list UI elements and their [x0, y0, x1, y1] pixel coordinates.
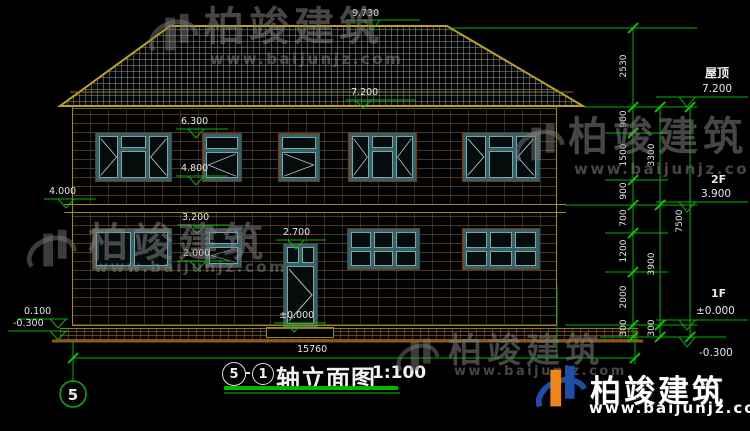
level-value-2f: 3.900	[701, 189, 731, 199]
watermark-brand: 柏竣建筑	[204, 6, 384, 48]
axis-bubble-label: 5	[60, 386, 86, 404]
level-value-1f: ±0.000	[696, 306, 735, 316]
level-value-roof: 7.200	[702, 84, 732, 94]
title-underline-thick	[224, 386, 398, 390]
brand-url: www.baijunjz.com	[589, 399, 750, 417]
dim-label-w2-top: 6.300	[181, 117, 208, 127]
watermark-url: www.baijunjz.com	[94, 258, 287, 276]
title-axis-start: 5	[222, 362, 246, 386]
dim-label-door-top: 2.700	[283, 228, 310, 238]
watermark-logo-icon	[512, 116, 570, 174]
dim-label-w2-sill: 4.800	[181, 164, 208, 174]
cad-elevation-canvas: 9.730 7.200 6.300 4.800 3.200 2.000 2.70…	[0, 0, 750, 431]
dim-col2-2: 300	[647, 306, 657, 350]
dim-label-belt: 4.000	[49, 187, 76, 197]
watermark-logo-icon	[394, 332, 444, 382]
brand-logo-icon	[532, 360, 590, 418]
dim-label-total-width: 15760	[297, 345, 327, 355]
dim-col2-1: 3900	[647, 242, 657, 286]
dim-col3-0: 7500	[675, 199, 685, 243]
dim-label-eave: 7.200	[351, 88, 378, 98]
dim-col1-7: 300	[619, 306, 629, 350]
dim-label-ground-left: -0.300	[13, 319, 44, 329]
title-separator: -	[245, 368, 251, 378]
title-underline-thin	[224, 392, 400, 394]
dimension-linework	[8, 20, 748, 407]
dim-label-floor-zero: ±0.000	[279, 311, 314, 321]
level-label-1f: 1F	[711, 289, 726, 299]
watermark-url: www.baijunjz.com	[574, 160, 750, 178]
title-axis-end: 1	[252, 363, 274, 385]
watermark-logo-icon	[146, 6, 204, 64]
dim-label-plinth: 0.100	[24, 307, 51, 317]
watermark-brand: 柏竣建筑	[568, 116, 748, 158]
watermark-logo-icon	[24, 222, 82, 280]
watermark-url: www.baijunjz.com	[210, 50, 403, 68]
dim-col1-5: 1200	[619, 229, 629, 273]
level-label-roof: 屋顶	[705, 68, 729, 78]
level-value-below-ground: -0.300	[699, 348, 733, 358]
dim-col1-0: 2530	[619, 44, 629, 88]
